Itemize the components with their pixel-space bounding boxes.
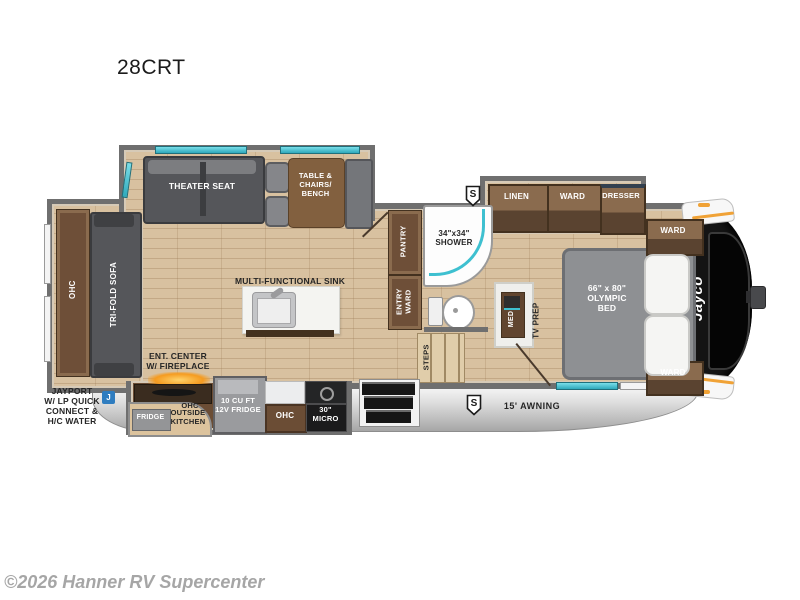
solar-badge-bottom: S — [466, 394, 482, 416]
svg-text:S: S — [471, 398, 478, 409]
microwave-label: 30" MICRO — [305, 406, 346, 424]
dinette-chair — [265, 162, 290, 193]
cooktop — [305, 381, 347, 404]
svg-text:S: S — [470, 189, 477, 200]
cap-light-top — [698, 203, 710, 207]
steps-label: STEPS — [418, 335, 436, 379]
pantry-label: PANTRY — [388, 214, 420, 269]
ward-slide-label: WARD — [547, 192, 598, 201]
entry-steps — [359, 379, 420, 427]
ohc-label: OHC — [265, 411, 305, 420]
copyright: ©2026 Hanner RV Supercenter — [4, 572, 264, 593]
toilet-bowl — [442, 295, 475, 330]
linen-label: LINEN — [488, 192, 545, 201]
kingpin-head — [750, 286, 766, 309]
window-strip — [620, 382, 648, 390]
outside-fridge-label: FRIDGE — [132, 414, 169, 422]
toilet-tank — [428, 297, 443, 326]
ward-front-bottom-label: WARD — [646, 368, 700, 377]
theater-seat-label: THEATER SEAT — [150, 181, 254, 191]
solar-badge-top: S — [465, 185, 481, 207]
pillow — [644, 254, 690, 315]
step-tread — [366, 410, 411, 423]
ent-center-label: ENT. CENTER W/ FIREPLACE — [128, 351, 228, 371]
dinette-chair — [265, 196, 290, 227]
bedroom-window — [556, 382, 618, 390]
outside-kitchen-label: OUTSIDE KITCHEN — [167, 409, 209, 427]
window-strip — [44, 296, 51, 362]
floorplan-canvas: 28CRT ©2026 Hanner RV Supercenter 15' AW… — [0, 0, 800, 600]
bed-label: 66" x 80" OLYMPIC BED — [570, 283, 644, 313]
sink-basin — [257, 298, 291, 324]
ward-front-top — [646, 219, 704, 256]
island-base — [246, 330, 334, 337]
dresser-label: DRESSER — [598, 192, 644, 201]
entry-ward-label: ENTRY WARD — [388, 277, 420, 326]
toilet-flush — [453, 308, 458, 313]
front-cap-window — [708, 232, 750, 370]
window-strip — [155, 146, 247, 154]
sofa-label: TRI-FOLD SOFA — [92, 240, 136, 350]
bath-wall — [424, 327, 488, 332]
fridge-top — [218, 380, 258, 394]
med-label: MED — [501, 304, 523, 334]
ward-front-top-label: WARD — [646, 226, 700, 235]
model-title: 28CRT — [117, 56, 186, 80]
sofa-armrest — [94, 214, 134, 227]
jayport-label: JAYPORT W/ LP QUICK CONNECT & H/C WATER — [22, 386, 122, 426]
dinette-bench — [345, 159, 373, 229]
island-label: MULTI-FUNCTIONAL SINK — [224, 276, 356, 286]
rear-ohc-label: OHC — [56, 250, 88, 330]
dinette-label: TABLE & CHAIRS/ BENCH — [288, 172, 343, 199]
fridge-12v-label: 10 CU FT 12V FRIDGE — [211, 397, 265, 415]
pillow — [644, 315, 690, 376]
window-strip — [280, 146, 360, 154]
window-strip — [44, 224, 51, 284]
tv-prep-label: TV PREP — [527, 288, 545, 354]
tv-screen — [152, 389, 196, 396]
shower-label: 34"x34" SHOWER — [423, 229, 485, 248]
counter — [265, 381, 305, 404]
awning-label: 15' AWNING — [497, 401, 567, 412]
step-tread — [364, 396, 413, 409]
step-tread — [362, 382, 415, 395]
burner — [320, 387, 334, 401]
